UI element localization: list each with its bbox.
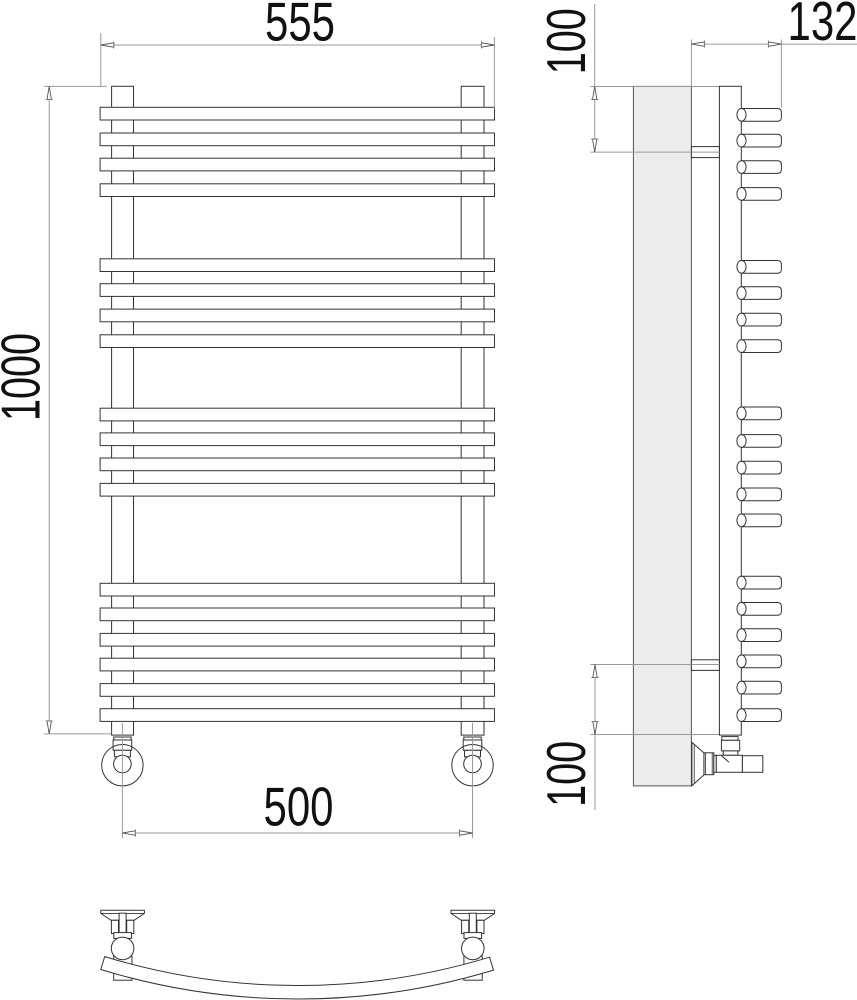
- svg-text:555: 555: [265, 0, 335, 53]
- svg-text:100: 100: [535, 8, 597, 74]
- svg-text:500: 500: [264, 776, 334, 838]
- svg-text:1000: 1000: [0, 333, 52, 421]
- svg-text:100: 100: [535, 741, 597, 807]
- svg-text:132: 132: [788, 0, 857, 52]
